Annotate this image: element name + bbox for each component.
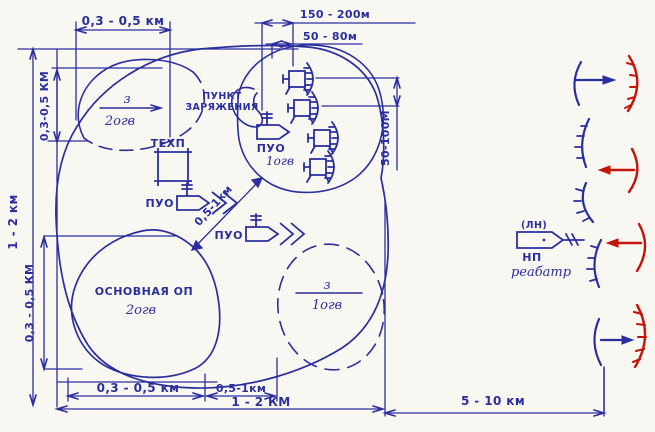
main-op-label-line2: 2огв	[125, 303, 156, 318]
reserve-op-2-denominator: 2огв	[104, 114, 135, 129]
launcher-icon	[304, 151, 334, 183]
tech-point-icon	[154, 148, 192, 186]
puo-center-icon	[246, 214, 278, 241]
puo-battery-label-line2: 1огв	[266, 154, 294, 168]
enemy-op-arrow-icon	[599, 149, 637, 192]
dim-top-right-upper-label: 150 - 200м	[300, 8, 370, 21]
reserve-op-1-denominator: 1огв	[312, 298, 342, 313]
dim-left-inner-label: 0,3-0,5 КМ	[38, 71, 51, 141]
own-trench-icon	[574, 183, 593, 222]
np-unit-label: реабатр	[511, 265, 572, 280]
dim-bottom-first-label: 0,3 - 0,5 км	[97, 381, 180, 395]
puo-left-icon	[177, 183, 209, 210]
charging-point-label-line1: ПУНКТ	[202, 91, 242, 102]
enemy-op-arrow-icon	[607, 224, 645, 271]
reserve-op-1-numerator: з	[323, 278, 330, 293]
reserve-op-2-numerator: з	[123, 92, 130, 107]
tactical-diagram: 0,3 - 0,5 км 150 - 200м 50 - 80м 1 - 2 к…	[0, 0, 655, 432]
dim-diagonal-label: 0,5-1км	[192, 183, 235, 229]
own-trench-icon	[587, 240, 601, 287]
enemy-trench-icon	[633, 305, 646, 367]
enemy-trench-icon	[625, 56, 637, 111]
main-op-label-line1: ОСНОВНАЯ ОП	[95, 285, 193, 298]
dim-left-lower-label: 0,3 - 0,5 КМ	[23, 264, 36, 343]
own-op-arrow-icon	[594, 319, 633, 411]
puo-center-chevrons	[280, 223, 304, 245]
dim-bottom-total-label: 1 - 2 КМ	[231, 395, 290, 409]
np-callsign-label: (ЛН)	[521, 220, 547, 231]
diagram-canvas: 0,3 - 0,5 км 150 - 200м 50 - 80м 1 - 2 к…	[0, 0, 655, 432]
dim-frontline-label: 5 - 10 км	[461, 394, 525, 408]
dim-top-right-lower-label: 50 - 80м	[303, 30, 357, 43]
launcher-icon	[308, 122, 338, 154]
dim-bottom-second-label: 0,5-1км	[216, 382, 266, 395]
launcher-icon	[288, 92, 318, 124]
own-trench-icon	[575, 119, 589, 167]
dim-top-left-label: 0,3 - 0,5 км	[82, 14, 165, 28]
own-op-arrow-icon	[574, 62, 615, 105]
dim-left-outer-label: 1 - 2 км	[6, 194, 20, 249]
dim-launcher-spacing-label: 50-100М	[379, 110, 392, 166]
charging-point-label-line2: ЗАРЯЖЕНИЯ	[185, 102, 258, 113]
puo-center-label: ПУО	[214, 229, 243, 242]
np-label: НП	[522, 251, 541, 264]
np-pennant-icon	[517, 232, 584, 248]
launcher-icon	[283, 63, 313, 95]
tech-point-label: ТЕХП	[151, 137, 186, 150]
puo-left-label: ПУО	[145, 197, 174, 210]
